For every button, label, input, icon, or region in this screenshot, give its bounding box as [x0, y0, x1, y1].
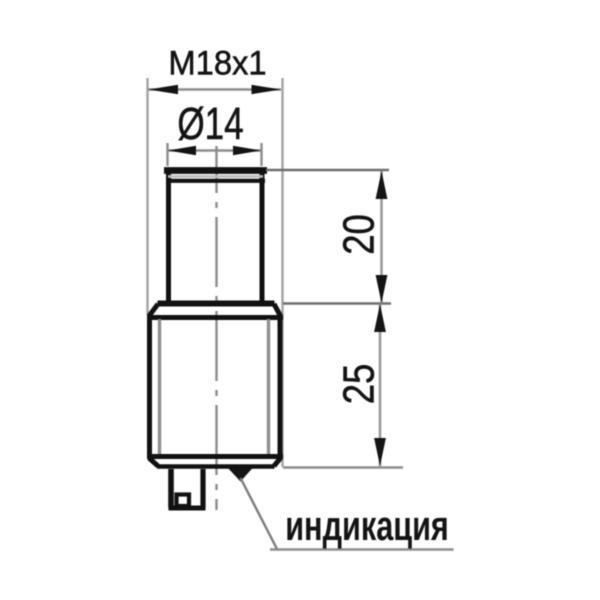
- svg-text:индикация: индикация: [285, 502, 449, 549]
- svg-text:25: 25: [333, 364, 383, 405]
- svg-text:Ø14: Ø14: [177, 98, 243, 149]
- svg-text:20: 20: [333, 214, 383, 255]
- svg-text:M18x1: M18x1: [168, 45, 266, 83]
